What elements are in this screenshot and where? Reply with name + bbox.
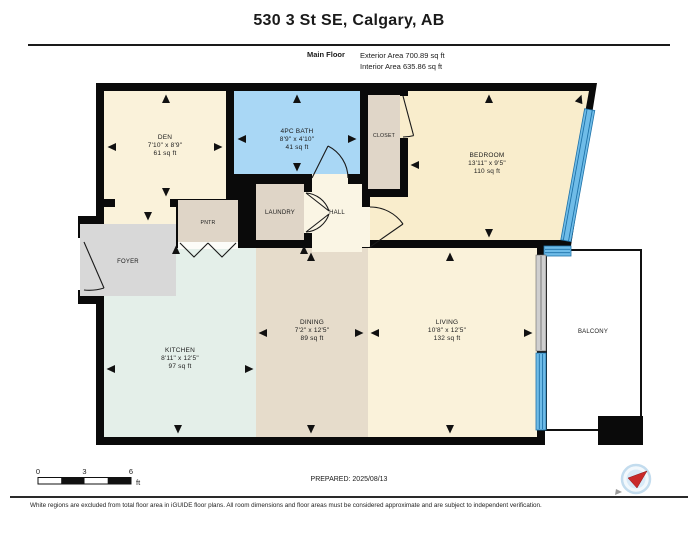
room-closet (368, 95, 400, 189)
floor-plan: DEN 7'10" x 8'9" 61 sq ft 4PC BATH 8'9" … (0, 0, 698, 540)
room-balcony (546, 250, 641, 430)
bedroom-dims: 13'11" x 9'5" (468, 160, 506, 167)
bath-dims: 8'9" x 4'10" (280, 136, 315, 143)
room-hall (312, 184, 362, 252)
compass-marker (615, 489, 622, 495)
scale-tick-3: 3 (82, 467, 86, 476)
laundry-name: LAUNDRY (265, 210, 295, 216)
scale-tick-6: 6 (129, 467, 133, 476)
wall-balcony-corner (598, 416, 643, 445)
kitchen-dims: 8'11" x 12'5" (161, 355, 199, 362)
pntr-name: PNTR (201, 220, 216, 226)
den-dims: 7'10" x 8'9" (148, 142, 183, 149)
bath-name: 4PC BATH (281, 128, 314, 135)
bath-area: 41 sq ft (286, 144, 309, 151)
living-area: 132 sq ft (434, 335, 461, 342)
bath-door-opening (312, 174, 348, 184)
den-area: 61 sq ft (154, 150, 177, 157)
bedroom-area: 110 sq ft (474, 168, 500, 175)
bedroom-door-opening (362, 207, 370, 247)
kitchen-area: 97 sq ft (169, 363, 192, 370)
closet-door-opening (400, 96, 408, 138)
balcony-name: BALCONY (578, 329, 608, 335)
den-strip (104, 207, 176, 224)
bedroom-name: BEDROOM (470, 152, 505, 159)
bedroom-balcony-window (544, 246, 571, 256)
hall-name: HALL (329, 210, 345, 216)
closet-name: CLOSET (373, 133, 396, 139)
den-name: DEN (158, 134, 172, 141)
living-name: LIVING (436, 319, 459, 326)
scale-tick-0: 0 (36, 467, 40, 476)
room-living (368, 248, 537, 437)
kitchen-name: KITCHEN (165, 347, 195, 354)
room-dining (256, 248, 368, 437)
dining-area: 89 sq ft (301, 335, 324, 342)
foyer-name: FOYER (117, 259, 139, 265)
footer-divider (10, 496, 688, 498)
living-window (536, 353, 546, 430)
floor-plan-page: 530 3 St SE, Calgary, AB Main Floor Exte… (0, 0, 698, 540)
dining-dims: 7'2" x 12'5" (295, 327, 330, 334)
laundry-door-opening (304, 192, 312, 233)
living-dims: 10'8" x 12'5" (428, 327, 467, 334)
dining-name: DINING (300, 319, 324, 326)
disclaimer-text: White regions are excluded from total fl… (30, 502, 542, 509)
prepared-date: PREPARED: 2025/08/13 (0, 476, 698, 483)
